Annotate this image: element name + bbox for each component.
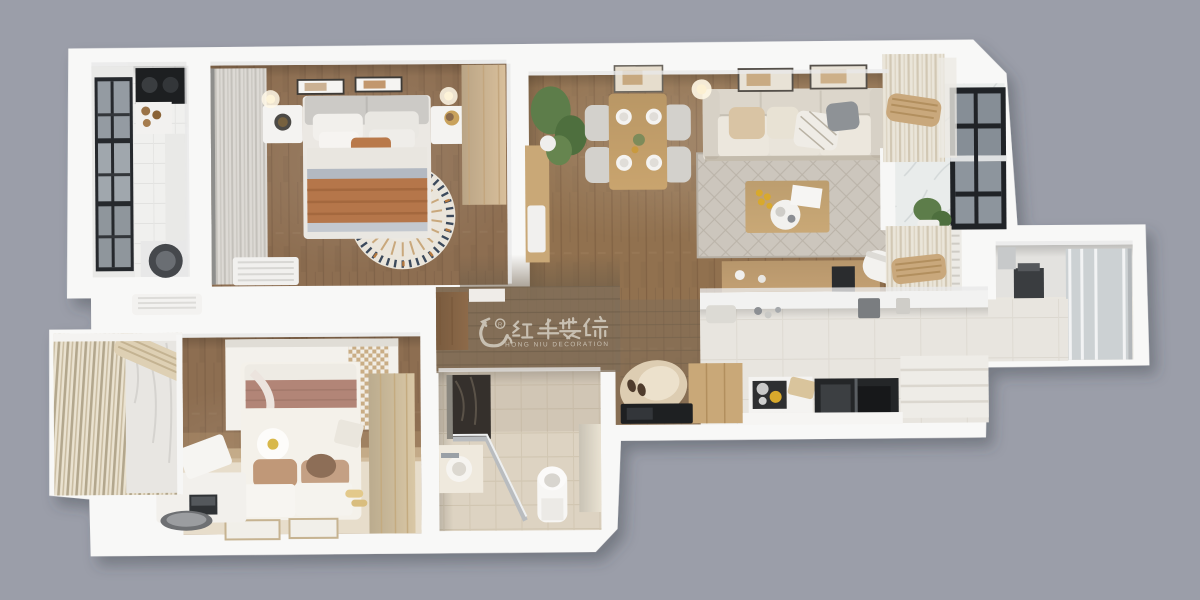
svg-text:R: R [498,323,503,329]
svg-text:HONG NIU DECORATION: HONG NIU DECORATION [505,341,609,349]
